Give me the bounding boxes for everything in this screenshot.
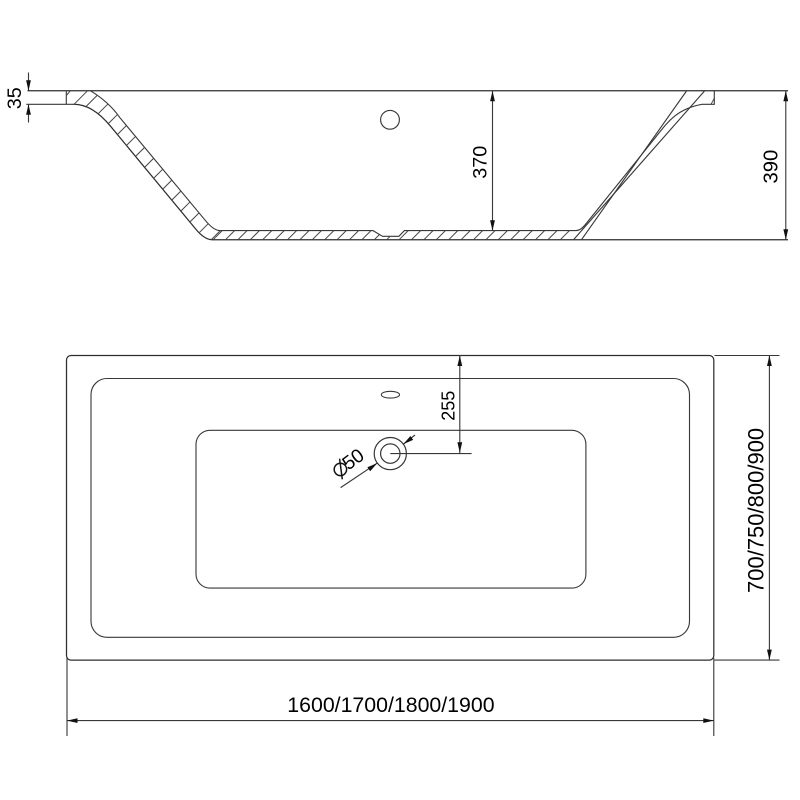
- svg-text:390: 390: [761, 150, 783, 184]
- svg-text:700/750/800/900: 700/750/800/900: [744, 428, 769, 593]
- svg-text:255: 255: [438, 391, 458, 421]
- svg-text:35: 35: [4, 87, 26, 109]
- svg-text:370: 370: [469, 146, 491, 179]
- svg-text:1600/1700/1800/1900: 1600/1700/1800/1900: [287, 693, 494, 717]
